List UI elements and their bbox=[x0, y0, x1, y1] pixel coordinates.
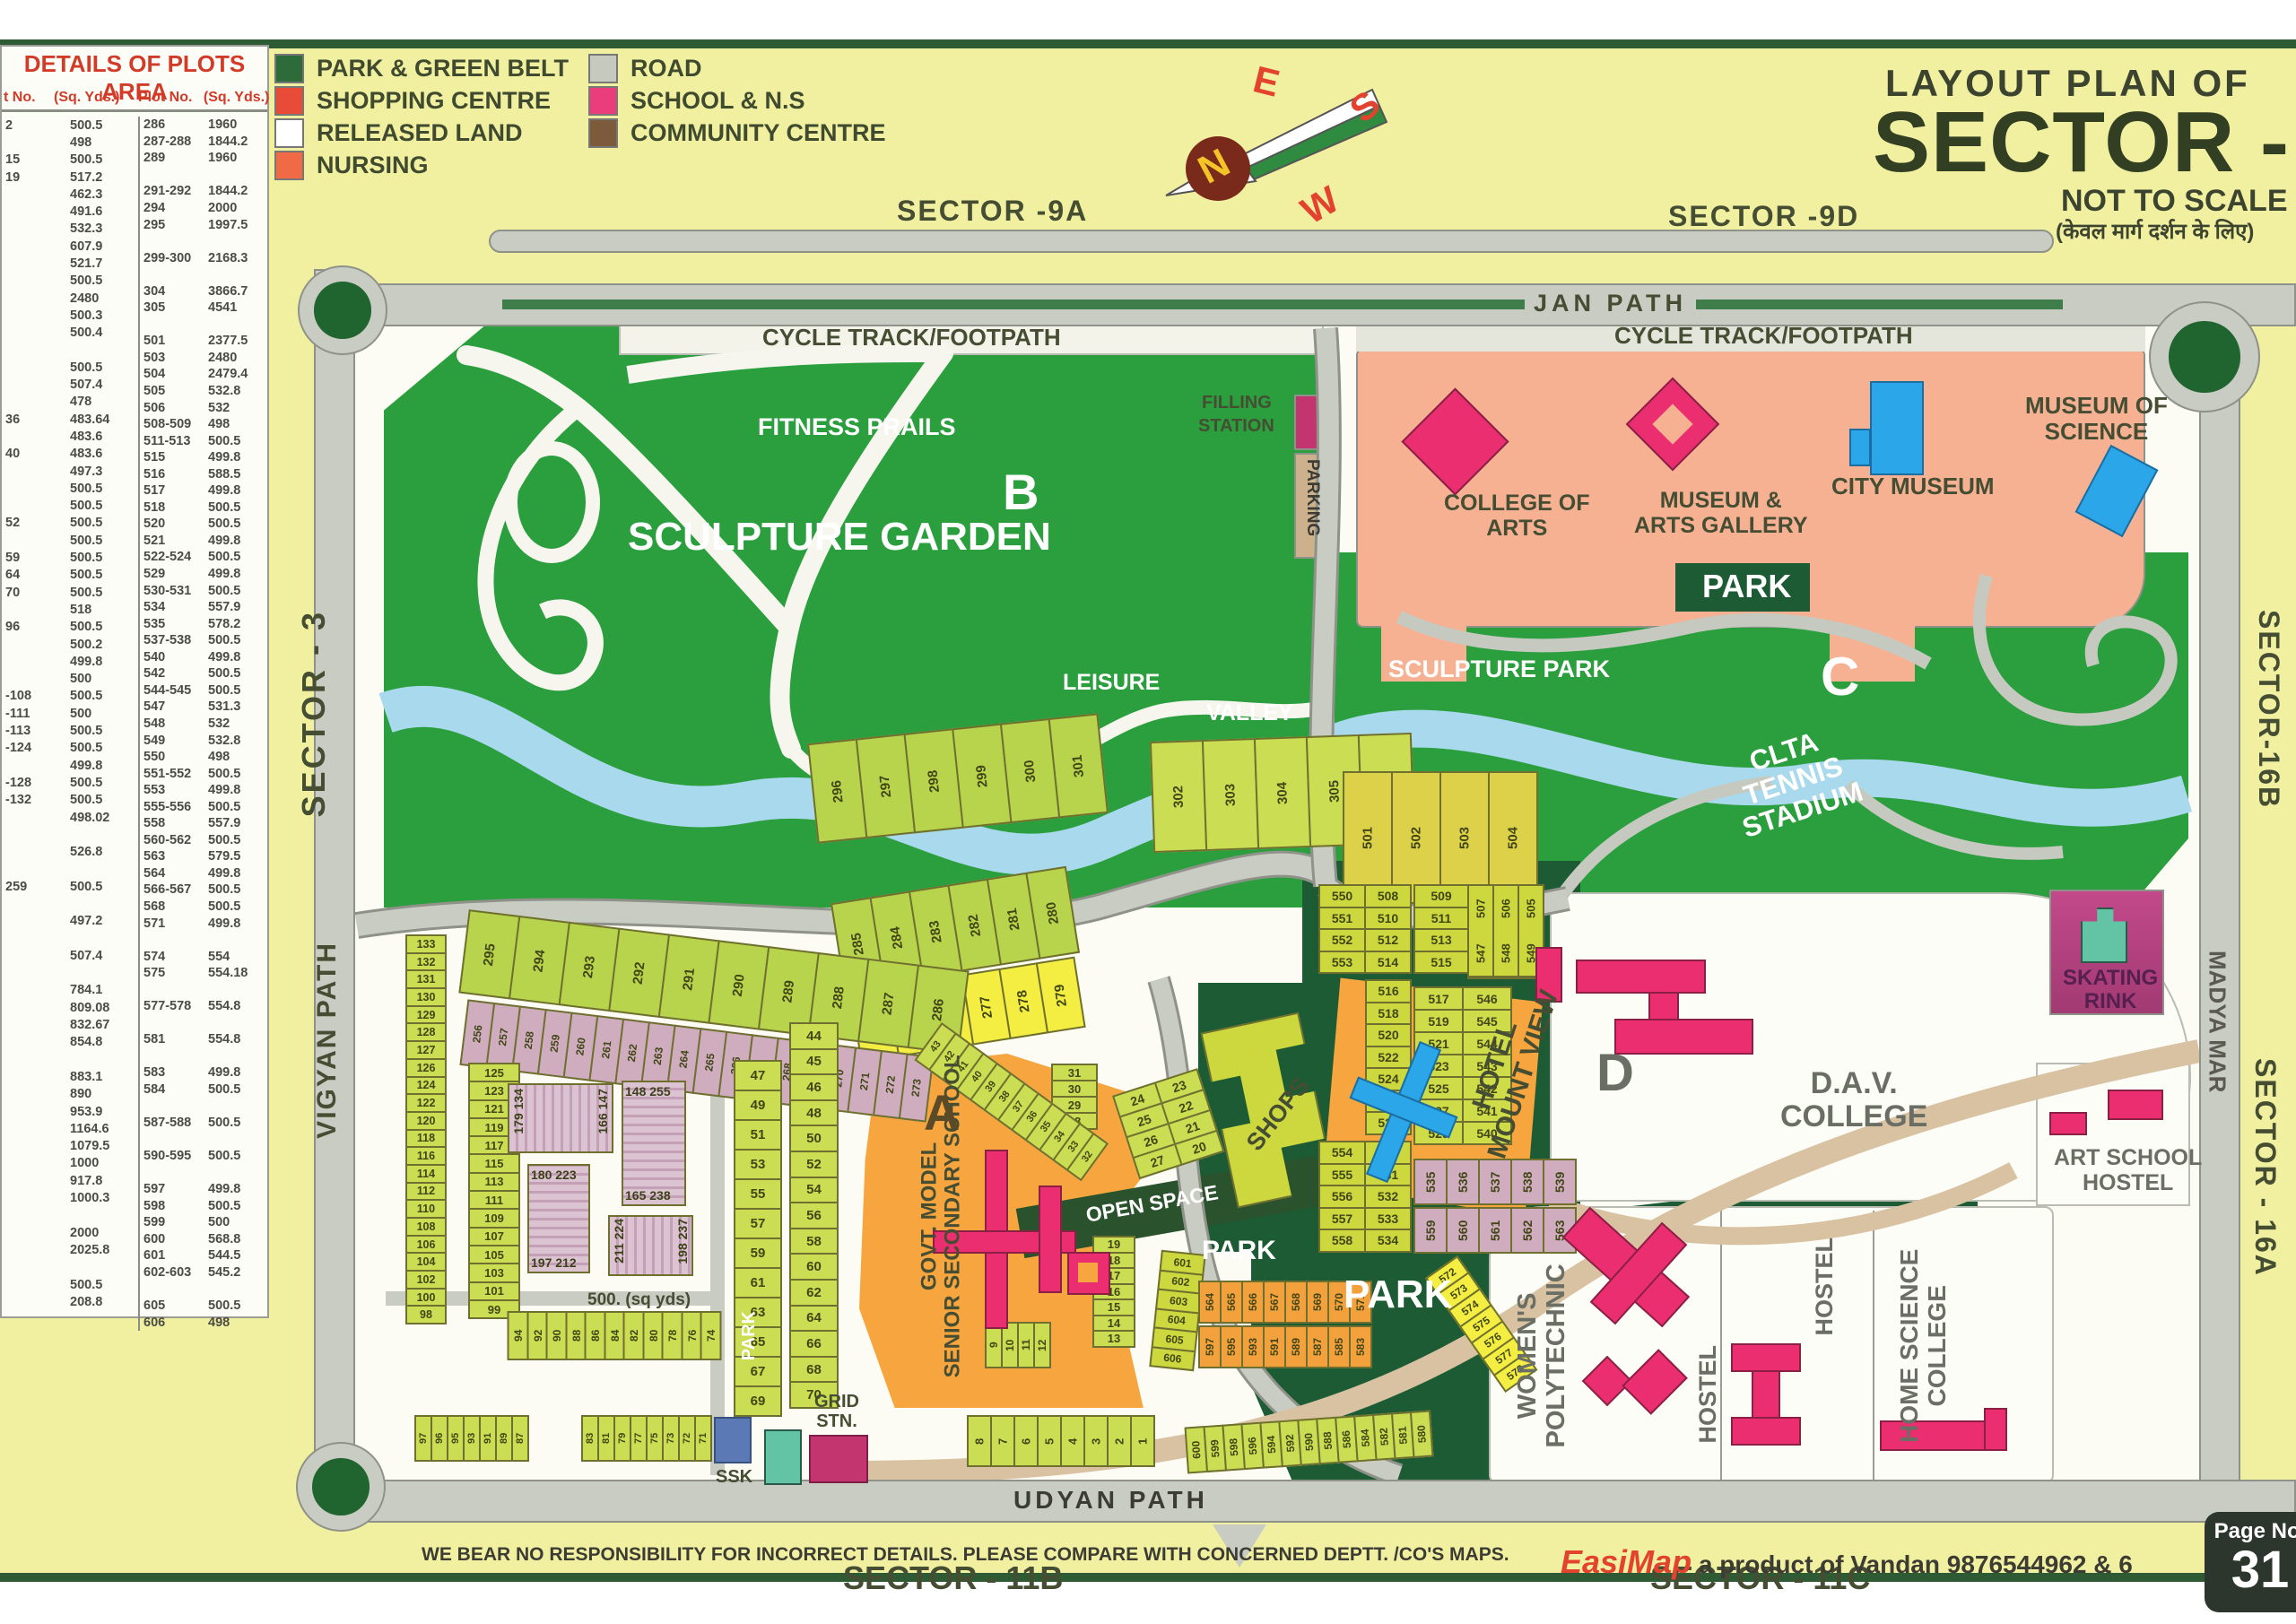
table-row: 534557.9 bbox=[143, 599, 273, 616]
table-row bbox=[5, 965, 133, 982]
plot: 585 bbox=[1327, 1325, 1351, 1368]
plot: 115 bbox=[468, 1153, 520, 1173]
table-row: 581554.8 bbox=[143, 1031, 273, 1048]
table-row bbox=[143, 266, 273, 283]
plot: 12 bbox=[1033, 1322, 1051, 1368]
plot: 92 bbox=[527, 1311, 549, 1360]
plot: 539 bbox=[1543, 1159, 1577, 1205]
plot: 113 bbox=[468, 1172, 520, 1192]
plot: 518 bbox=[1365, 1002, 1412, 1026]
nursing-swatch-icon bbox=[274, 151, 304, 180]
plot: 50 bbox=[789, 1125, 839, 1152]
home-line1: HOME SCIENCE bbox=[1896, 1211, 1924, 1481]
plot: 109 bbox=[468, 1208, 520, 1228]
park-vert-label: PARK bbox=[739, 1311, 759, 1360]
plot: 120 bbox=[405, 1111, 447, 1131]
table-row: 5012377.5 bbox=[143, 333, 273, 350]
cycle-track-left-label: CYCLE TRACK/FOOTPATH bbox=[762, 325, 1061, 351]
table-row: 518500.5 bbox=[143, 499, 273, 517]
table-row: 544-545500.5 bbox=[143, 682, 273, 699]
plot: 129 bbox=[405, 1005, 447, 1025]
table-row: 529499.8 bbox=[143, 566, 273, 583]
plot: 62 bbox=[789, 1279, 839, 1307]
plot-group-47: 474951535557596163656769 bbox=[734, 1060, 782, 1417]
table-row: 550498 bbox=[143, 749, 273, 766]
table-row: -124500.5 bbox=[5, 740, 133, 757]
table-row: 587-588500.5 bbox=[143, 1115, 273, 1132]
museum-of-science-label: MUSEUM OF SCIENCE bbox=[2025, 393, 2168, 444]
area-c-label: C bbox=[1821, 647, 1859, 707]
plot: 82 bbox=[623, 1311, 645, 1360]
legend-road: ROAD bbox=[588, 54, 702, 83]
plot: 535 bbox=[1413, 1159, 1448, 1205]
table-row: 917.8 bbox=[5, 1172, 133, 1189]
block-148-255: 148 255 165 238 bbox=[622, 1081, 686, 1206]
table-row: 36483.64 bbox=[5, 411, 133, 428]
table-row: 478 bbox=[5, 394, 133, 411]
city-museum-building bbox=[1870, 381, 1924, 475]
table-row: 540499.8 bbox=[143, 649, 273, 666]
plot: 53 bbox=[734, 1149, 782, 1180]
plot: 66 bbox=[789, 1330, 839, 1358]
plot: 561 bbox=[1478, 1207, 1512, 1254]
table-row: 5032480 bbox=[143, 350, 273, 367]
table-row: 547531.3 bbox=[143, 699, 273, 716]
table-row: 2500.5 bbox=[5, 117, 133, 134]
plot: 591 bbox=[1263, 1325, 1286, 1368]
legend-released-land: RELEASED LAND bbox=[274, 118, 523, 148]
plot: 567 bbox=[1263, 1281, 1286, 1324]
udyan-path-road[interactable] bbox=[314, 1480, 2296, 1523]
sqyds-label: 500. (sq yds) bbox=[587, 1291, 691, 1310]
city-museum-building bbox=[1849, 429, 1871, 466]
grid-stn-label: GRID STN. bbox=[814, 1392, 859, 1431]
not-to-scale: NOT TO SCALE bbox=[2061, 185, 2288, 218]
easimap-brand: EasiMap bbox=[1561, 1543, 1692, 1580]
table-row: 530-531500.5 bbox=[143, 582, 273, 599]
plot: 580 bbox=[1410, 1410, 1434, 1457]
grid-stn-box bbox=[809, 1435, 868, 1483]
hostel-building bbox=[1752, 1370, 1780, 1419]
table-row: 537-538500.5 bbox=[143, 632, 273, 649]
table-row bbox=[5, 342, 133, 359]
plot: 58 bbox=[789, 1228, 839, 1255]
table-row: 600568.8 bbox=[143, 1231, 273, 1248]
table-row: 70500.5 bbox=[5, 584, 133, 601]
plot: 84 bbox=[604, 1311, 626, 1360]
page-number-box: Page No. 31 bbox=[2205, 1512, 2296, 1612]
plot: 77 bbox=[630, 1415, 648, 1462]
dav-building bbox=[1648, 992, 1679, 1020]
table-row: 498 bbox=[5, 134, 133, 151]
table-row: 2951997.5 bbox=[143, 216, 273, 233]
msci-line2: SCIENCE bbox=[2025, 419, 2168, 445]
plot: 550508 bbox=[1318, 884, 1412, 908]
plot: 89 bbox=[495, 1415, 513, 1462]
table-row: 507.4 bbox=[5, 376, 133, 393]
plot: 537 bbox=[1478, 1159, 1512, 1205]
legend-label: RELEASED LAND bbox=[317, 119, 523, 147]
sector-3-label: SECTOR - 3 bbox=[296, 610, 332, 817]
plot: 569 bbox=[1306, 1281, 1329, 1324]
block-211-224: 211 224 198 237 bbox=[608, 1215, 693, 1276]
table-row bbox=[143, 167, 273, 184]
udyan-path-label: UDYAN PATH bbox=[1013, 1487, 1208, 1515]
table-row: 2891960 bbox=[143, 150, 273, 167]
sector-16b-label: SECTOR-16B bbox=[2253, 610, 2284, 809]
plot: 538 bbox=[1510, 1159, 1544, 1205]
park-big-label: PARK bbox=[1344, 1273, 1452, 1316]
table-row: 500 bbox=[5, 671, 133, 688]
table-row: 551-552500.5 bbox=[143, 765, 273, 782]
plot: 8 bbox=[967, 1415, 992, 1467]
table-row: 15500.5 bbox=[5, 152, 133, 169]
table-row bbox=[143, 1164, 273, 1181]
filling-label: FILLING bbox=[1202, 393, 1272, 413]
plot: 64 bbox=[789, 1305, 839, 1333]
table-row: 2480 bbox=[5, 290, 133, 307]
header-area: (Sq. Yds.) bbox=[54, 90, 120, 105]
plot: 83 bbox=[581, 1415, 599, 1462]
table-row: 96500.5 bbox=[5, 619, 133, 636]
plot: 565 bbox=[1220, 1281, 1243, 1324]
table-row: 568500.5 bbox=[143, 899, 273, 916]
plot: 125 bbox=[468, 1063, 520, 1082]
plot: 583 bbox=[1349, 1325, 1372, 1368]
plot: 520 bbox=[1365, 1023, 1412, 1047]
plot: 130 bbox=[405, 987, 447, 1007]
plot: 112 bbox=[405, 1182, 447, 1202]
service-road-top[interactable] bbox=[489, 230, 2054, 253]
block-label: 166 147 bbox=[596, 1089, 610, 1134]
table-row: 507.4 bbox=[5, 947, 133, 964]
plot: 556532 bbox=[1318, 1185, 1412, 1209]
block-179-134: 179 134 166 147 bbox=[508, 1083, 613, 1153]
table-row: 564499.8 bbox=[143, 865, 273, 882]
table-row: 548532 bbox=[143, 716, 273, 733]
plot: 47 bbox=[734, 1060, 782, 1091]
block-label: 165 238 bbox=[625, 1188, 671, 1203]
legend-label: SHOPPING CENTRE bbox=[317, 87, 551, 115]
plot: 67 bbox=[734, 1356, 782, 1387]
table-row: 64500.5 bbox=[5, 567, 133, 584]
plot-group-505-549: 507547506548505549 bbox=[1467, 884, 1544, 979]
table-row: 500.4 bbox=[5, 325, 133, 342]
table-row: 566-567500.5 bbox=[143, 881, 273, 899]
plot-group-583: 597595593591589587585583 bbox=[1198, 1325, 1372, 1368]
plot: 304 bbox=[1254, 736, 1311, 849]
table-row: 511-513500.5 bbox=[143, 432, 273, 449]
plot: 88 bbox=[566, 1311, 587, 1360]
plot: 1 bbox=[1130, 1415, 1155, 1467]
table-row: -108500.5 bbox=[5, 688, 133, 705]
plot: 101 bbox=[468, 1281, 520, 1301]
page-number: 31 bbox=[2205, 1544, 2296, 1596]
plot: 111 bbox=[468, 1190, 520, 1210]
table-row bbox=[5, 930, 133, 947]
plot: 78 bbox=[662, 1311, 683, 1360]
table-row: 208.8 bbox=[5, 1293, 133, 1310]
table-row bbox=[5, 1259, 133, 1276]
home-science-building bbox=[1984, 1408, 2007, 1451]
table-row: 483.6 bbox=[5, 428, 133, 445]
dav-line1: D.A.V. bbox=[1780, 1067, 1927, 1100]
table-row: 575554.18 bbox=[143, 965, 273, 982]
plot: 61 bbox=[734, 1267, 782, 1298]
table-row bbox=[5, 1207, 133, 1224]
plot: 509 bbox=[1413, 884, 1469, 908]
table-row: 521.7 bbox=[5, 255, 133, 272]
plot: 127 bbox=[405, 1040, 447, 1060]
legend-label: COMMUNITY CENTRE bbox=[631, 119, 886, 147]
table-right-column: 2861960287-2881844.22891960291-2921844.2… bbox=[138, 117, 273, 1331]
plot: 566 bbox=[1241, 1281, 1265, 1324]
plot: 31 bbox=[1051, 1064, 1098, 1081]
plot: 100 bbox=[405, 1288, 447, 1307]
sector-9d-label: SECTOR -9D bbox=[1668, 201, 1859, 232]
plot: 131 bbox=[405, 969, 447, 989]
vigyan-path-road[interactable] bbox=[314, 269, 355, 1499]
released-swatch-icon bbox=[274, 118, 304, 148]
legend-label: SCHOOL & N.S bbox=[631, 87, 805, 115]
plot: 76 bbox=[682, 1311, 703, 1360]
block-label: 180 223 bbox=[531, 1168, 577, 1182]
table-row: 558557.9 bbox=[143, 815, 273, 832]
table-row bbox=[143, 1098, 273, 1115]
table-row: 532.3 bbox=[5, 221, 133, 238]
plot: 90 bbox=[546, 1311, 568, 1360]
table-header-right: Plot No. (Sq. Yds.) bbox=[138, 90, 269, 106]
top-border bbox=[0, 39, 2296, 48]
sculpture-park-label: SCULPTURE PARK bbox=[1388, 656, 1610, 683]
grid-line2: STN. bbox=[814, 1411, 859, 1431]
table-row: 601544.5 bbox=[143, 1247, 273, 1264]
table-row: 571499.8 bbox=[143, 915, 273, 932]
sub-park-box bbox=[764, 1429, 802, 1485]
table-row: 497.2 bbox=[5, 913, 133, 930]
table-row: 491.6 bbox=[5, 203, 133, 220]
skating-line1: SKATING bbox=[2063, 967, 2158, 990]
table-row: 549532.8 bbox=[143, 732, 273, 749]
table-row: 598500.5 bbox=[143, 1198, 273, 1215]
plot: 507547 bbox=[1467, 884, 1494, 979]
table-row: 498.02 bbox=[5, 809, 133, 826]
legend-nursing: NURSING bbox=[274, 151, 429, 180]
block-label: 179 134 bbox=[511, 1089, 526, 1134]
table-row: 1164.6 bbox=[5, 1120, 133, 1137]
plot: 96 bbox=[430, 1415, 448, 1462]
plot: 2 bbox=[1107, 1415, 1132, 1467]
legend-shopping-centre: SHOPPING CENTRE bbox=[274, 86, 551, 116]
art-line2: HOSTEL bbox=[2054, 1171, 2202, 1196]
plot: 132 bbox=[405, 952, 447, 972]
plot: 57 bbox=[734, 1208, 782, 1239]
plot-group-44: 444546485052545658606264666870 bbox=[789, 1022, 839, 1409]
madya-marg-road[interactable] bbox=[2199, 341, 2240, 1507]
table-row: 574554 bbox=[143, 948, 273, 965]
table-row: 784.1 bbox=[5, 982, 133, 999]
table-row bbox=[143, 233, 273, 250]
table-row: 500.5 bbox=[5, 498, 133, 515]
plot: 558534 bbox=[1318, 1229, 1412, 1253]
school-building bbox=[1039, 1185, 1062, 1293]
art-school-hostel-label: ART SCHOOL HOSTEL bbox=[2054, 1146, 2202, 1195]
plot: 45 bbox=[789, 1048, 839, 1076]
art-school-building bbox=[2049, 1112, 2087, 1135]
plots-area-table: DETAILS OF PLOTS AREA t No. (Sq. Yds.) P… bbox=[0, 45, 269, 1318]
plot-group-535: 535536537538539 bbox=[1413, 1159, 1577, 1205]
plot: 3 bbox=[1083, 1415, 1109, 1467]
plot: 303 bbox=[1202, 738, 1259, 851]
skating-line2: RINK bbox=[2063, 990, 2158, 1013]
plot: 60 bbox=[789, 1253, 839, 1281]
plot: 587 bbox=[1306, 1325, 1329, 1368]
table-row bbox=[5, 861, 133, 878]
plot: 46 bbox=[789, 1073, 839, 1101]
ssk-box bbox=[714, 1417, 752, 1463]
plot: 606 bbox=[1149, 1346, 1196, 1372]
museum-line1: MUSEUM & bbox=[1634, 489, 1808, 514]
table-row: 2000 bbox=[5, 1224, 133, 1241]
grid-line1: GRID bbox=[814, 1392, 859, 1411]
plot: 56 bbox=[789, 1202, 839, 1229]
table-row: 553499.8 bbox=[143, 782, 273, 799]
table-row: 299-3002168.3 bbox=[143, 249, 273, 266]
table-row bbox=[5, 1051, 133, 1068]
plot-group-550-508: 550508551510552512553514 bbox=[1318, 884, 1412, 974]
legend-label: PARK & GREEN BELT bbox=[317, 55, 569, 83]
hostel-building bbox=[1731, 1417, 1801, 1446]
table-row: 606498 bbox=[143, 1314, 273, 1331]
header-plot-no: t No. bbox=[4, 90, 36, 105]
table-row bbox=[143, 1131, 273, 1148]
table-row: 516588.5 bbox=[143, 465, 273, 482]
table-row: 890 bbox=[5, 1086, 133, 1103]
cycle-track-right-label: CYCLE TRACK/FOOTPATH bbox=[1614, 323, 1913, 349]
station-label: STATION bbox=[1198, 416, 1274, 436]
plot: 553514 bbox=[1318, 951, 1412, 975]
table-row: 500.5 bbox=[5, 359, 133, 376]
table-row bbox=[143, 932, 273, 949]
park-small-label: PARK bbox=[1202, 1236, 1276, 1265]
table-row: 499.8 bbox=[5, 757, 133, 774]
table-row: 560-562500.5 bbox=[143, 832, 273, 849]
sector-11b-label: SECTOR - 11B bbox=[843, 1560, 1063, 1596]
header-plot-no: Plot No. bbox=[138, 90, 192, 105]
disclaimer-text: WE BEAR NO RESPONSIBILITY FOR INCORRECT … bbox=[422, 1544, 1509, 1565]
plot: 560 bbox=[1446, 1207, 1480, 1254]
table-row: 521499.8 bbox=[143, 533, 273, 550]
plot: 48 bbox=[789, 1099, 839, 1127]
legend-community-centre: COMMUNITY CENTRE bbox=[588, 118, 886, 148]
table-row: 505532.8 bbox=[143, 383, 273, 400]
womens-polytechnic-label: WOMEN'S POLYTECHNIC bbox=[1514, 1221, 1571, 1490]
community-swatch-icon bbox=[588, 118, 618, 148]
msci-line1: MUSEUM OF bbox=[2025, 393, 2168, 419]
jan-path-label: JAN PATH bbox=[1525, 291, 1696, 317]
plot: 506548 bbox=[1492, 884, 1519, 979]
table-row: 555-556500.5 bbox=[143, 798, 273, 815]
plot: 551510 bbox=[1318, 907, 1412, 931]
plot: 597 bbox=[1198, 1325, 1222, 1368]
table-row: 2861960 bbox=[143, 117, 273, 134]
plot: 79 bbox=[613, 1415, 631, 1462]
table-row: 52500.5 bbox=[5, 515, 133, 532]
plot: 516 bbox=[1365, 979, 1412, 1003]
plot: 69 bbox=[734, 1385, 782, 1417]
plot: 30 bbox=[1051, 1080, 1098, 1098]
jan-path-median bbox=[502, 300, 2063, 309]
layout-map-page: 296297298299300301 302303304305306 50150… bbox=[0, 0, 2296, 1624]
vigyan-path-label: VIGYAN PATH bbox=[312, 942, 342, 1139]
block-180-223: 180 223 197 212 bbox=[527, 1164, 590, 1273]
plot: 106 bbox=[405, 1235, 447, 1255]
table-row: 584500.5 bbox=[143, 1081, 273, 1099]
plot: 536 bbox=[1446, 1159, 1480, 1205]
table-row bbox=[143, 317, 273, 334]
legend-label: NURSING bbox=[317, 152, 429, 179]
plot: 107 bbox=[468, 1227, 520, 1246]
table-row: 809.08 bbox=[5, 999, 133, 1016]
table-row: -132500.5 bbox=[5, 792, 133, 809]
plot-group-1-8: 87654321 bbox=[967, 1415, 1155, 1467]
college-line2: ARTS bbox=[1444, 517, 1590, 542]
table-row bbox=[143, 1015, 273, 1032]
plot: 555531 bbox=[1318, 1163, 1412, 1187]
table-row: 500.3 bbox=[5, 307, 133, 324]
roundabout-top-left bbox=[298, 265, 387, 355]
plot: 75 bbox=[646, 1415, 664, 1462]
table-row: 59500.5 bbox=[5, 549, 133, 566]
colleges-divider2 bbox=[1873, 1211, 1874, 1480]
hostel-building bbox=[1731, 1343, 1801, 1372]
table-left-column: 2500.549815500.519517.2462.3491.6532.360… bbox=[5, 117, 133, 1310]
dav-building bbox=[1614, 1019, 1753, 1055]
plot: 91 bbox=[479, 1415, 497, 1462]
page-title: SECTOR - 10 bbox=[1873, 95, 2296, 190]
dav-line2: COLLEGE bbox=[1780, 1100, 1927, 1133]
table-row: 500.2 bbox=[5, 636, 133, 653]
table-row bbox=[143, 1048, 273, 1065]
plot: 52 bbox=[789, 1151, 839, 1178]
table-row: 535578.2 bbox=[143, 615, 273, 632]
roundabout-bottom-left bbox=[296, 1442, 386, 1532]
table-row: 3043866.7 bbox=[143, 282, 273, 300]
plot: 589 bbox=[1284, 1325, 1308, 1368]
plot: 51 bbox=[734, 1119, 782, 1151]
womens-line1: WOMEN'S bbox=[1514, 1221, 1543, 1490]
table-row: 583499.8 bbox=[143, 1064, 273, 1081]
parking-label: PARKING bbox=[1302, 459, 1321, 536]
table-row: 526.8 bbox=[5, 843, 133, 860]
dav-college-label: D.A.V. COLLEGE bbox=[1780, 1067, 1927, 1134]
plot-group-83: 8381797775737271 bbox=[581, 1415, 712, 1462]
plot: 55 bbox=[734, 1178, 782, 1210]
plot: 105 bbox=[468, 1245, 520, 1264]
plot: 513 bbox=[1413, 928, 1469, 952]
plot: 124 bbox=[405, 1076, 447, 1096]
table-row: 500.5 bbox=[5, 273, 133, 290]
table-row bbox=[5, 895, 133, 912]
table-row: -128500.5 bbox=[5, 774, 133, 791]
school-building-hole bbox=[1078, 1263, 1098, 1282]
plot: 11 bbox=[1017, 1322, 1035, 1368]
table-row: 953.9 bbox=[5, 1103, 133, 1120]
madya-marg-label: MADYA MAR bbox=[2205, 951, 2231, 1092]
plot: 73 bbox=[662, 1415, 680, 1462]
table-row: 1000 bbox=[5, 1155, 133, 1172]
sector-9a-label: SECTOR -9A bbox=[897, 195, 1088, 227]
